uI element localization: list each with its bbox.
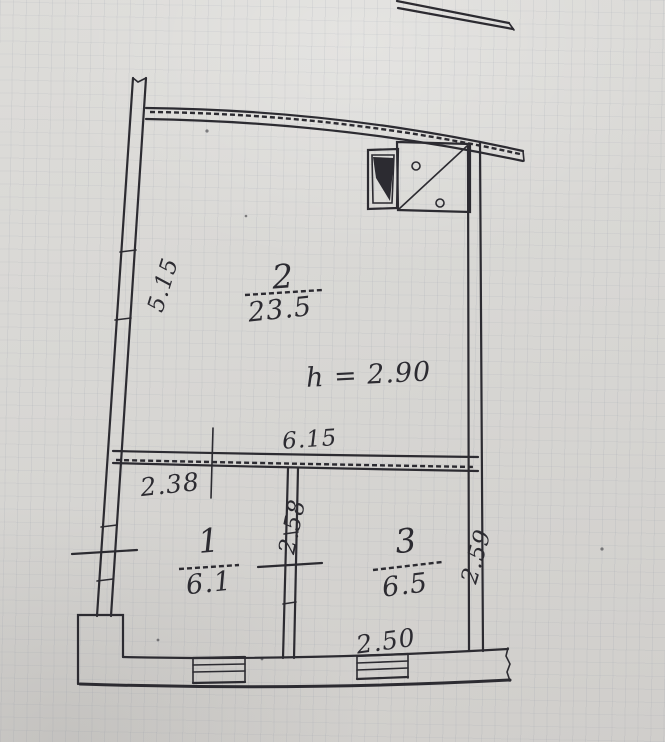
adjacent-drawing-fragment: [397, 1, 514, 30]
dim-room2-width: 6.15: [281, 425, 338, 455]
room-area: 6.5: [380, 567, 429, 603]
vent-hole-icon: [436, 199, 444, 207]
torn-edge: [506, 648, 510, 681]
dim-left-wall: 5.15: [143, 255, 184, 315]
room-area: 6.1: [184, 566, 233, 602]
scanned-floor-plan: 2 23.5 h = 2.90 1 6.1 3 6.5 5.15 6.15 2.…: [0, 0, 665, 742]
corner-pillar: [78, 615, 123, 684]
room-number: 1: [196, 520, 221, 561]
vent-hole-icon: [412, 162, 420, 170]
ventilation-shaft-symbol: [368, 142, 470, 212]
vent-flue-triangle: [373, 157, 394, 201]
room-number: 3: [393, 520, 419, 561]
room-3-label: 3 6.5: [373, 520, 442, 604]
left-wall: [97, 78, 146, 616]
ceiling-height-note: h = 2.90: [305, 356, 432, 394]
left-wall-dimension-tick: [72, 550, 137, 554]
window-symbol: [193, 657, 245, 683]
dim-room1-width: 2.38: [138, 467, 201, 502]
dimension-tick: [211, 428, 213, 498]
room-2-label: 2 23.5: [245, 256, 322, 328]
partition-wall-rooms-1-3: [258, 468, 322, 658]
floor-plan-drawing: 2 23.5 h = 2.90 1 6.1 3 6.5 5.15 6.15 2.…: [0, 0, 665, 742]
room-1-label: 1 6.1: [179, 520, 239, 601]
dim-room3-depth: 2.59: [456, 526, 496, 587]
dimension-tick: [258, 563, 322, 567]
dim-partition-1-3: 2.58: [274, 497, 311, 557]
room-area: 23.5: [246, 291, 314, 329]
room-number: 2: [270, 256, 296, 297]
